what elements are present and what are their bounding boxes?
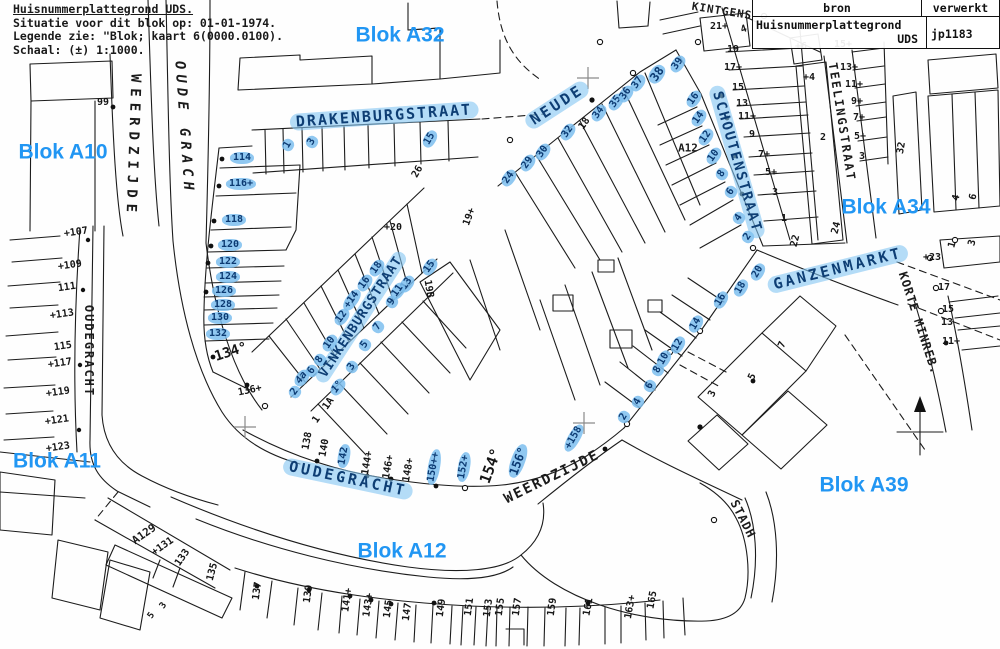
house-number: 159 xyxy=(547,597,559,616)
house-number: 1 xyxy=(781,214,787,224)
house-number: 130 xyxy=(208,312,232,324)
house-number: 139 xyxy=(303,584,315,603)
house-number: 15 xyxy=(942,305,954,315)
house-number: 154° xyxy=(478,446,504,485)
house-number: 15 xyxy=(732,83,744,93)
house-number: 5+ xyxy=(854,132,866,142)
house-number: +23 xyxy=(923,253,941,263)
source-table: bron verwerkt Huisnummerplattegrond UDS … xyxy=(752,0,1000,49)
house-number: 1 xyxy=(947,241,958,249)
house-number: 3 xyxy=(159,601,169,611)
house-number: +113 xyxy=(49,308,74,321)
house-number: 3 xyxy=(304,134,320,150)
header-legende-line: Legende zie: "Blok; kaart 6(0000.0100). xyxy=(13,29,283,43)
header-schaal-line: Schaal: (±) 1:1000. xyxy=(13,43,145,57)
house-number: 12 xyxy=(668,334,687,356)
house-number: 5+ xyxy=(765,168,777,178)
house-number: 7 xyxy=(370,319,387,336)
house-number: 149 xyxy=(436,598,448,617)
house-number: 126 xyxy=(212,285,236,297)
house-number: 11+ xyxy=(845,80,863,90)
house-number: 32 xyxy=(558,121,578,143)
house-number: 7 xyxy=(777,340,789,350)
house-number: 11+ xyxy=(738,112,756,122)
house-number: +117 xyxy=(47,357,72,370)
house-number: 132 xyxy=(206,328,230,340)
house-number: 14 xyxy=(686,313,705,335)
house-number: 4 xyxy=(951,194,962,202)
house-number: 161 xyxy=(583,597,596,617)
house-number: 118 xyxy=(222,214,246,226)
house-number: 99 xyxy=(97,98,109,108)
house-number: 9+ xyxy=(851,97,863,107)
house-number: 2 xyxy=(820,133,826,143)
house-number: 124 xyxy=(216,271,240,283)
house-number: +119 xyxy=(45,386,70,399)
street-label: KORTE MINREB. xyxy=(897,270,941,375)
house-number: +4 xyxy=(803,73,815,83)
blok-label: Blok A34 xyxy=(841,197,930,218)
house-number: 3 xyxy=(772,188,778,198)
house-number: 10 xyxy=(704,145,724,167)
house-number: 18 xyxy=(731,277,750,299)
house-number: 156° xyxy=(505,442,530,480)
house-number: 143+ xyxy=(362,592,375,617)
house-number: 18 xyxy=(577,116,592,132)
house-number: 147 xyxy=(402,602,414,621)
house-number: 3 xyxy=(967,239,978,247)
house-number: 5 xyxy=(747,372,759,382)
house-number: +109 xyxy=(57,259,82,272)
house-number: 14 xyxy=(689,107,709,129)
house-number: 163+ xyxy=(624,594,638,619)
house-number: 142 xyxy=(336,443,352,469)
house-number: 150++ xyxy=(425,448,443,486)
house-number: 13 xyxy=(941,318,953,328)
house-number: 9 xyxy=(749,130,755,140)
house-number: 145 xyxy=(383,599,395,618)
house-number: 8 xyxy=(714,166,731,183)
blok-label: Blok A12 xyxy=(357,541,446,562)
house-number: 24 xyxy=(499,167,519,189)
house-number: 120 xyxy=(218,239,242,251)
verwerkt-header-cell: verwerkt xyxy=(921,0,999,16)
house-number: 19 xyxy=(727,45,739,55)
house-number: 6 xyxy=(642,378,658,394)
house-number: 30 xyxy=(533,141,553,163)
house-number: 24 xyxy=(831,221,844,235)
house-number: 19B xyxy=(422,279,435,299)
bron-value-cell: Huisnummerplattegrond UDS xyxy=(753,17,926,48)
house-number: +131 xyxy=(150,536,175,558)
street-label: A12 xyxy=(678,143,698,154)
house-number: 3 xyxy=(707,389,719,399)
house-number: 1A xyxy=(321,396,336,412)
house-number: 138 xyxy=(302,431,315,451)
house-number: 116+ xyxy=(226,178,256,190)
house-number: 128 xyxy=(211,299,235,311)
house-number: 38 xyxy=(645,62,668,87)
street-label: OUDEGRACHT xyxy=(83,305,95,397)
house-number: 26 xyxy=(411,164,426,179)
house-number: 6 xyxy=(968,193,979,201)
house-number: 3 xyxy=(859,152,865,162)
house-number: 134° xyxy=(213,340,249,364)
house-number: +107 xyxy=(63,226,88,239)
header-title: Huisnummerplattegrond UDS. xyxy=(13,2,193,16)
source-table-header-row: bron verwerkt xyxy=(753,0,999,17)
house-number: 137 xyxy=(252,581,264,600)
house-number: 165 xyxy=(647,590,660,610)
house-number: +121 xyxy=(44,414,69,427)
house-number: 1 xyxy=(280,137,296,153)
house-number: 13+ xyxy=(840,63,858,73)
street-label: GANZENMARKT xyxy=(766,243,910,294)
street-label: KINTGENS xyxy=(691,1,753,21)
house-number: 19+ xyxy=(462,207,478,227)
house-number: 22 xyxy=(790,234,803,248)
house-number: 157 xyxy=(512,597,524,616)
house-number: 7+ xyxy=(758,150,770,160)
house-number: 148+ xyxy=(402,457,416,482)
house-number: 21+ xyxy=(710,22,728,32)
house-number: 17+ xyxy=(724,63,742,73)
house-number: 7+ xyxy=(853,113,865,123)
house-number: 136+ xyxy=(237,384,263,399)
house-number: +158 xyxy=(561,422,586,454)
house-number: 1 xyxy=(311,415,323,426)
source-abbr: UDS xyxy=(756,32,924,46)
house-number: 2 xyxy=(616,409,632,425)
house-number: 133 xyxy=(174,548,193,569)
house-number: 32 xyxy=(896,141,908,155)
house-number: 5 xyxy=(357,337,374,354)
house-number: 111 xyxy=(57,282,76,294)
house-number: 3 xyxy=(344,359,361,376)
source-table-value-row: Huisnummerplattegrond UDS jp1183 xyxy=(753,17,999,48)
street-label: OUDE GRACH xyxy=(172,61,195,196)
label-layer: 99114116+118120122124126128130132134°136… xyxy=(0,0,1000,649)
house-number: 17 xyxy=(938,283,950,293)
blok-label: Blok A39 xyxy=(819,475,908,496)
map-header-notes: Huisnummerplattegrond UDS. Situatie voor… xyxy=(13,3,283,57)
house-number: 146+ xyxy=(382,454,396,479)
verwerkt-value-cell: jp1183 xyxy=(926,17,999,48)
house-number: 11+ xyxy=(942,337,960,347)
house-number: 15 xyxy=(420,256,440,278)
house-number: 16 xyxy=(684,88,704,110)
source-name: Huisnummerplattegrond xyxy=(756,18,924,32)
map-canvas: 99114116+118120122124126128130132134°136… xyxy=(0,0,1000,649)
house-number: 12 xyxy=(696,126,716,148)
house-number: 152+ xyxy=(455,451,472,483)
house-number: 151 xyxy=(464,597,476,616)
house-number: 141+ xyxy=(341,587,354,612)
blok-label: Blok A10 xyxy=(18,142,107,163)
bron-header-cell: bron xyxy=(753,0,921,16)
house-number: 1° xyxy=(328,376,348,398)
house-number: 114 xyxy=(230,152,254,164)
house-number: 4 xyxy=(739,24,748,35)
header-situatie-line: Situatie voor dit blok op: 01-01-1974. xyxy=(13,16,276,30)
house-number: 13 xyxy=(736,99,748,109)
house-number: 122 xyxy=(216,256,240,268)
blok-label: Blok A32 xyxy=(355,25,444,46)
street-label: WEERDZIJDE xyxy=(123,74,142,219)
house-number: 155 xyxy=(495,597,507,616)
street-label: DRAKENBURGSTRAAT xyxy=(289,101,478,131)
house-number: 135 xyxy=(206,562,220,582)
house-number: 39 xyxy=(668,53,688,75)
house-number: 15 xyxy=(420,128,439,150)
street-label: VINKENBURGSTRAAT xyxy=(313,249,409,386)
house-number: 115 xyxy=(53,341,72,353)
blok-label: Blok A11 xyxy=(13,451,101,472)
house-number: 16 xyxy=(711,289,730,311)
house-number: 140 xyxy=(319,438,332,458)
house-number: 5 xyxy=(147,611,157,621)
house-number: 20 xyxy=(748,261,767,283)
street-label: A129 xyxy=(130,522,158,546)
house-number: +20 xyxy=(384,223,402,233)
house-number: 4 xyxy=(630,394,646,410)
street-label: STADH xyxy=(728,498,757,540)
